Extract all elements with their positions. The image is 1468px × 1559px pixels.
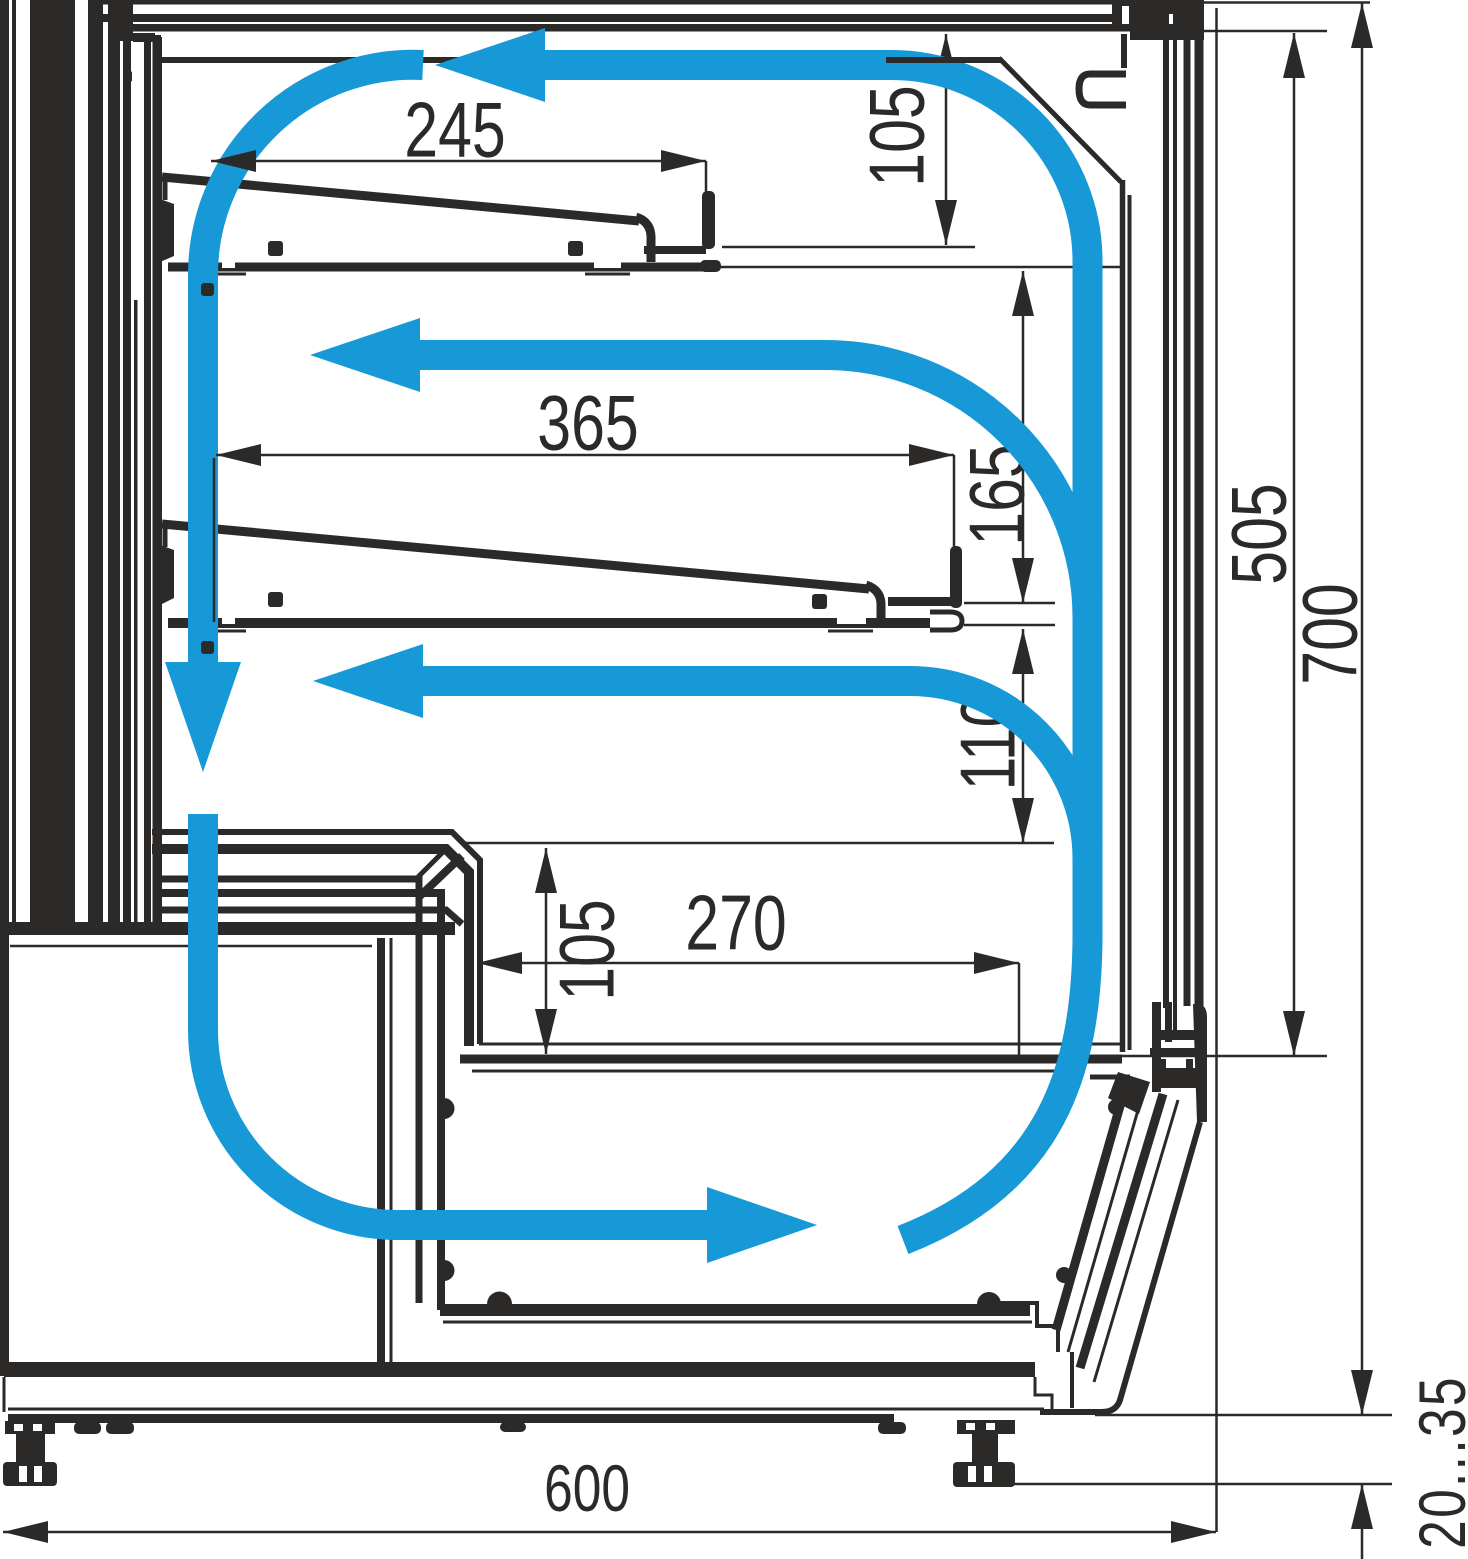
svg-text:365: 365 bbox=[537, 379, 639, 466]
svg-text:245: 245 bbox=[404, 86, 506, 173]
svg-text:700: 700 bbox=[1286, 583, 1373, 685]
svg-text:270: 270 bbox=[685, 879, 787, 966]
svg-text:105: 105 bbox=[543, 899, 630, 1001]
svg-text:600: 600 bbox=[544, 1451, 630, 1526]
svg-text:20...35: 20...35 bbox=[1405, 1375, 1468, 1549]
svg-text:505: 505 bbox=[1215, 483, 1302, 585]
svg-text:105: 105 bbox=[853, 85, 940, 187]
